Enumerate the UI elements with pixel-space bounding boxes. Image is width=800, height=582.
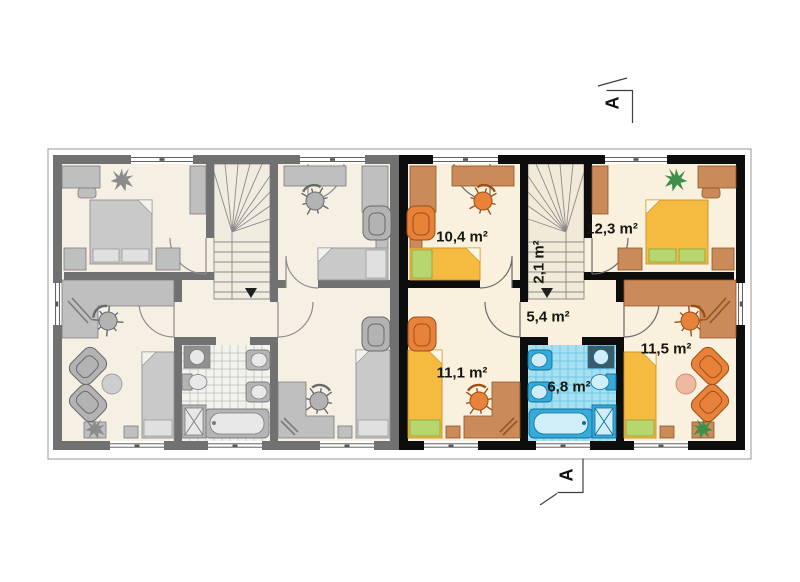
room-area-label: 10,4 m² <box>436 228 488 245</box>
room-area-label: 12,3 m² <box>586 220 638 237</box>
room-area-label: 11,5 m² <box>641 340 692 357</box>
room-area-label: 11,1 m² <box>437 364 488 381</box>
floor-plan-svg: 10,4 m² 2,1 m² 12,3 m² 5,4 m² 11,1 m² 6,… <box>0 0 800 582</box>
unit-right-coloured <box>399 155 745 450</box>
section-marker-bottom: A <box>540 459 583 506</box>
room-area-label: 5,4 m² <box>526 308 569 325</box>
section-marker-top: A <box>598 78 633 123</box>
room-area-label-stairs: 2,1 m² <box>530 240 547 283</box>
section-marker-letter: A <box>602 97 622 110</box>
unit-left-grey <box>53 155 399 450</box>
floor-plan-page: 10,4 m² 2,1 m² 12,3 m² 5,4 m² 11,1 m² 6,… <box>0 0 800 582</box>
section-marker-letter: A <box>556 469 576 482</box>
room-area-label: 6,8 m² <box>547 378 590 395</box>
